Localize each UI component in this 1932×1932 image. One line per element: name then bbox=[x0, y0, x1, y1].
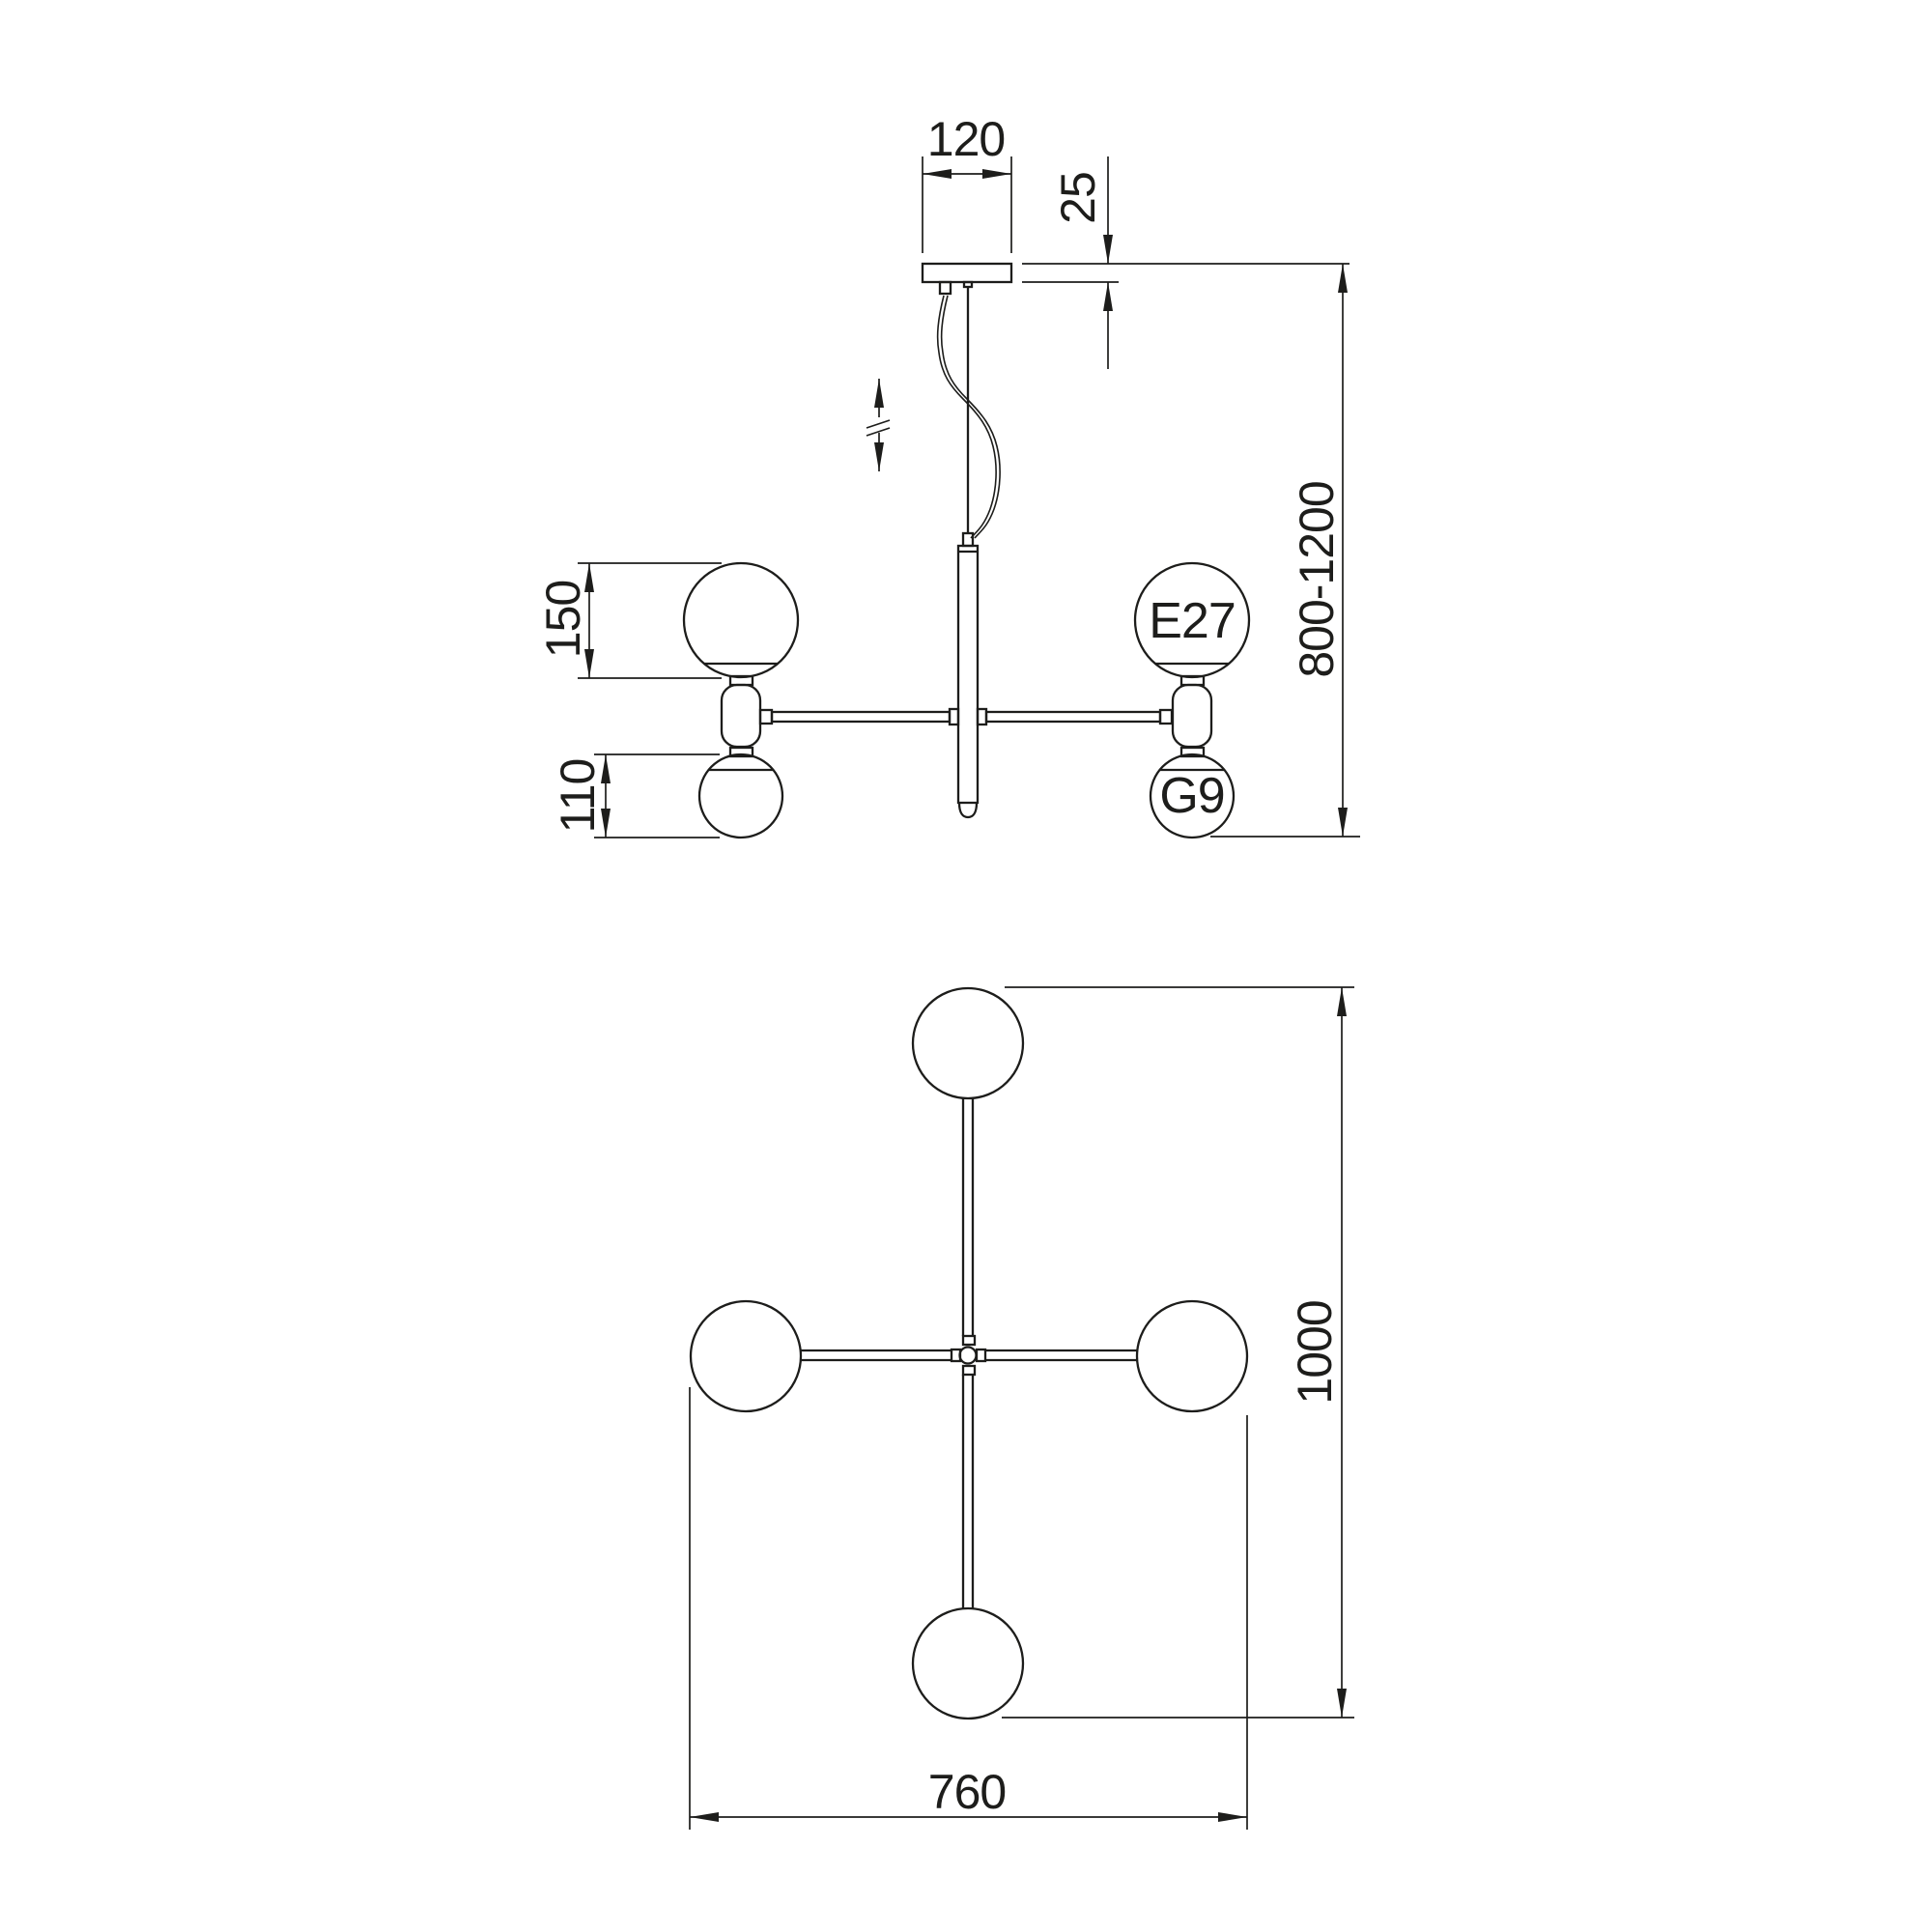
hub-block-bottom bbox=[963, 1366, 975, 1375]
dimension-suspension-height: 800-1200 bbox=[1210, 264, 1360, 837]
dimension-text-suspension-height: 800-1200 bbox=[1290, 481, 1344, 677]
arm-end-block bbox=[760, 710, 772, 724]
dimension-text-large-shade: 150 bbox=[536, 581, 590, 658]
dimension-text-canopy-thickness: 25 bbox=[1051, 172, 1105, 224]
height-adjust-symbol bbox=[867, 379, 890, 471]
rod-connector bbox=[963, 533, 973, 546]
central-hub bbox=[952, 1336, 985, 1375]
dimension-text-canopy-width: 120 bbox=[927, 112, 1005, 166]
socket-label-g9: G9 bbox=[1159, 768, 1224, 824]
stem-fitting bbox=[964, 282, 972, 287]
pendant-lamp-dimension-drawing: 120 25 bbox=[0, 0, 1932, 1932]
break-mark bbox=[867, 420, 890, 428]
globe-top bbox=[913, 988, 1023, 1098]
dimension-plan-height: 1000 bbox=[1002, 987, 1354, 1718]
central-rod bbox=[958, 533, 978, 817]
hub-capsule bbox=[1173, 685, 1211, 747]
arm-left-segment bbox=[772, 712, 950, 722]
dimension-small-shade: 110 bbox=[551, 754, 720, 838]
arm-right-segment bbox=[986, 712, 1160, 722]
plan-view: 1000 760 bbox=[690, 987, 1354, 1830]
globe-bottom bbox=[913, 1608, 1023, 1719]
technical-drawing-page: 120 25 bbox=[0, 0, 1932, 1932]
front-view: 120 25 bbox=[536, 112, 1360, 838]
rod-bottom-dome bbox=[959, 803, 977, 817]
globe-right bbox=[1137, 1301, 1247, 1411]
break-mark bbox=[867, 428, 890, 436]
hub-block-right bbox=[977, 1350, 985, 1361]
rod-body bbox=[958, 546, 978, 803]
dimension-canopy-thickness: 25 bbox=[1051, 156, 1108, 369]
arm-end-block bbox=[1160, 710, 1172, 724]
canopy-plate bbox=[923, 264, 1011, 282]
dimension-text-small-shade: 110 bbox=[551, 759, 605, 834]
arm-center-block bbox=[978, 709, 986, 724]
hub-block-top bbox=[963, 1336, 975, 1345]
dimension-text-plan-height: 1000 bbox=[1288, 1300, 1342, 1404]
cable-gland bbox=[940, 282, 951, 294]
cross-arms bbox=[801, 1098, 1137, 1608]
large-globe bbox=[684, 563, 798, 677]
arm-center-block bbox=[950, 709, 958, 724]
small-globe bbox=[699, 754, 782, 838]
cable-line bbox=[942, 296, 1001, 538]
globe-left bbox=[691, 1301, 801, 1411]
horizontal-arm bbox=[760, 709, 1172, 724]
left-lamp-assembly bbox=[684, 563, 798, 838]
dimension-text-plan-width: 760 bbox=[928, 1765, 1006, 1819]
hub-circle bbox=[960, 1348, 977, 1364]
dimension-canopy-width: 120 bbox=[923, 112, 1011, 253]
hub-capsule bbox=[722, 685, 760, 747]
dimension-large-shade: 150 bbox=[536, 563, 722, 678]
socket-label-e27: E27 bbox=[1149, 593, 1236, 649]
right-lamp-assembly: E27 G9 bbox=[1135, 563, 1249, 838]
